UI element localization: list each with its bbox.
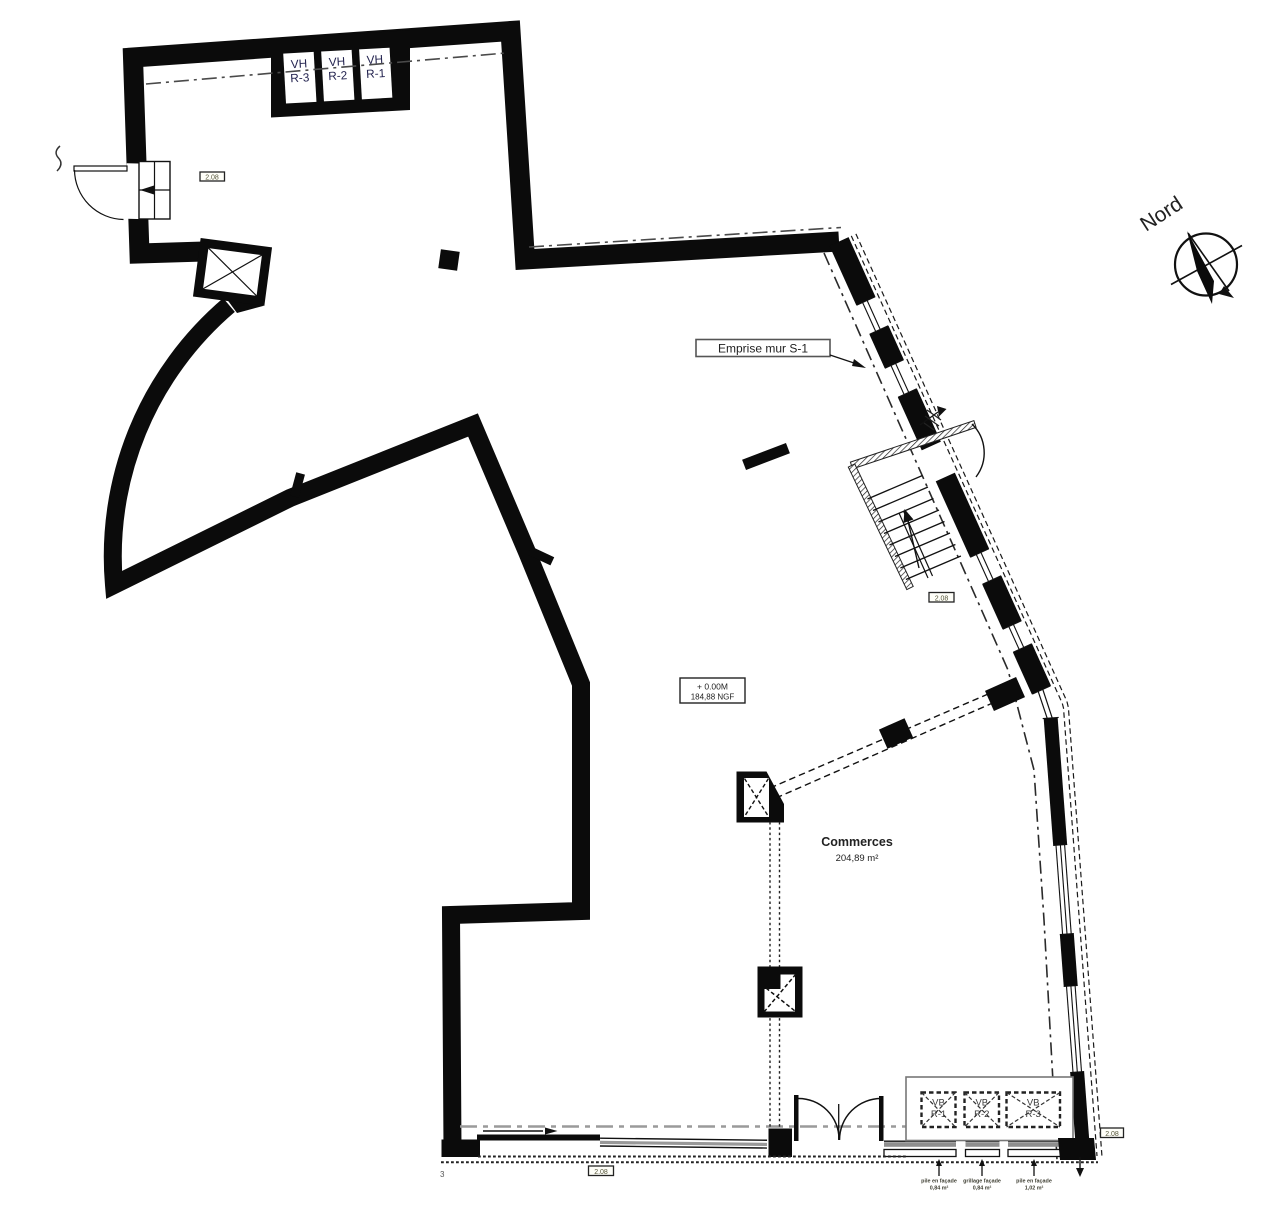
svg-text:grillage façade: grillage façade bbox=[963, 1179, 1001, 1185]
svg-text:2.08: 2.08 bbox=[205, 175, 219, 182]
svg-text:0,84 m²: 0,84 m² bbox=[930, 1186, 949, 1192]
svg-text:R-2: R-2 bbox=[328, 68, 348, 83]
svg-text:0,84 m²: 0,84 m² bbox=[973, 1186, 992, 1192]
svg-text:R-3: R-3 bbox=[1026, 1109, 1041, 1120]
svg-text:pile en façade: pile en façade bbox=[1016, 1179, 1052, 1185]
svg-text:Commerces: Commerces bbox=[821, 835, 893, 849]
svg-text:VB: VB bbox=[975, 1098, 988, 1109]
svg-text:R-1: R-1 bbox=[366, 66, 386, 81]
svg-text:VB: VB bbox=[1027, 1098, 1040, 1109]
svg-text:2.08: 2.08 bbox=[594, 1169, 608, 1176]
svg-text:3: 3 bbox=[440, 1170, 445, 1179]
svg-text:184,88 NGF: 184,88 NGF bbox=[691, 693, 735, 702]
svg-text:2.08: 2.08 bbox=[935, 596, 949, 603]
svg-text:204,89 m²: 204,89 m² bbox=[836, 853, 879, 864]
svg-text:+ 0.00M: + 0.00M bbox=[697, 682, 728, 692]
svg-text:1,02 m²: 1,02 m² bbox=[1025, 1186, 1044, 1192]
svg-text:R-1: R-1 bbox=[931, 1109, 946, 1120]
svg-text:VB: VB bbox=[932, 1098, 945, 1109]
svg-text:VH: VH bbox=[290, 56, 307, 71]
svg-text:R-2: R-2 bbox=[974, 1109, 989, 1120]
svg-text:pile en façade: pile en façade bbox=[921, 1179, 957, 1185]
svg-text:Emprise mur S-1: Emprise mur S-1 bbox=[718, 342, 808, 356]
svg-text:2.08: 2.08 bbox=[1105, 1131, 1119, 1138]
svg-text:R-3: R-3 bbox=[290, 70, 310, 85]
